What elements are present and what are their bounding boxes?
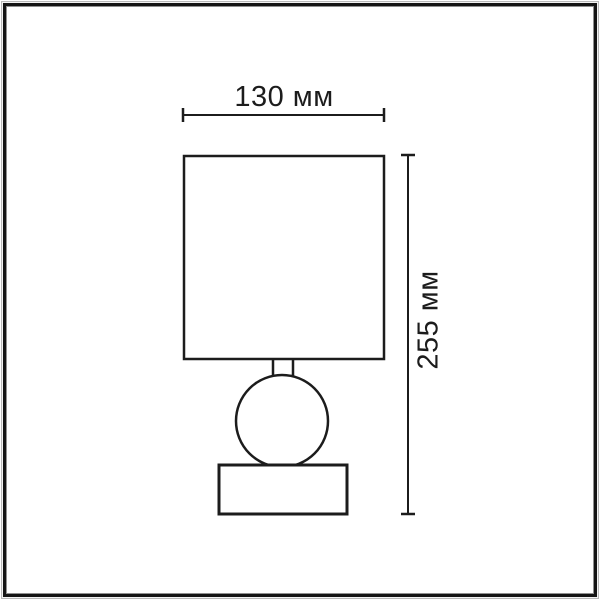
- height-dimension-label: 255 мм: [415, 270, 444, 369]
- screenshot-viewport: 130 мм 255 мм: [0, 0, 600, 600]
- lamp-sphere-outline: [236, 375, 328, 467]
- framed-canvas: 130 мм 255 мм: [7, 7, 593, 593]
- width-dimension-label: 130 мм: [184, 83, 384, 112]
- lamp-base-outline: [219, 465, 347, 514]
- lampshade-outline: [184, 156, 384, 359]
